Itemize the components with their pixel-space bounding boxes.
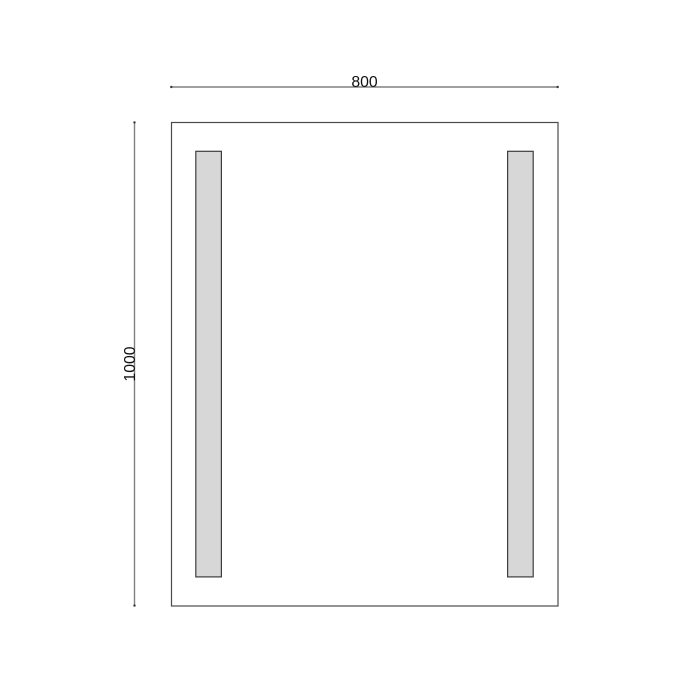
svg-text:800: 800 (351, 74, 378, 91)
svg-text:1000: 1000 (122, 346, 139, 381)
